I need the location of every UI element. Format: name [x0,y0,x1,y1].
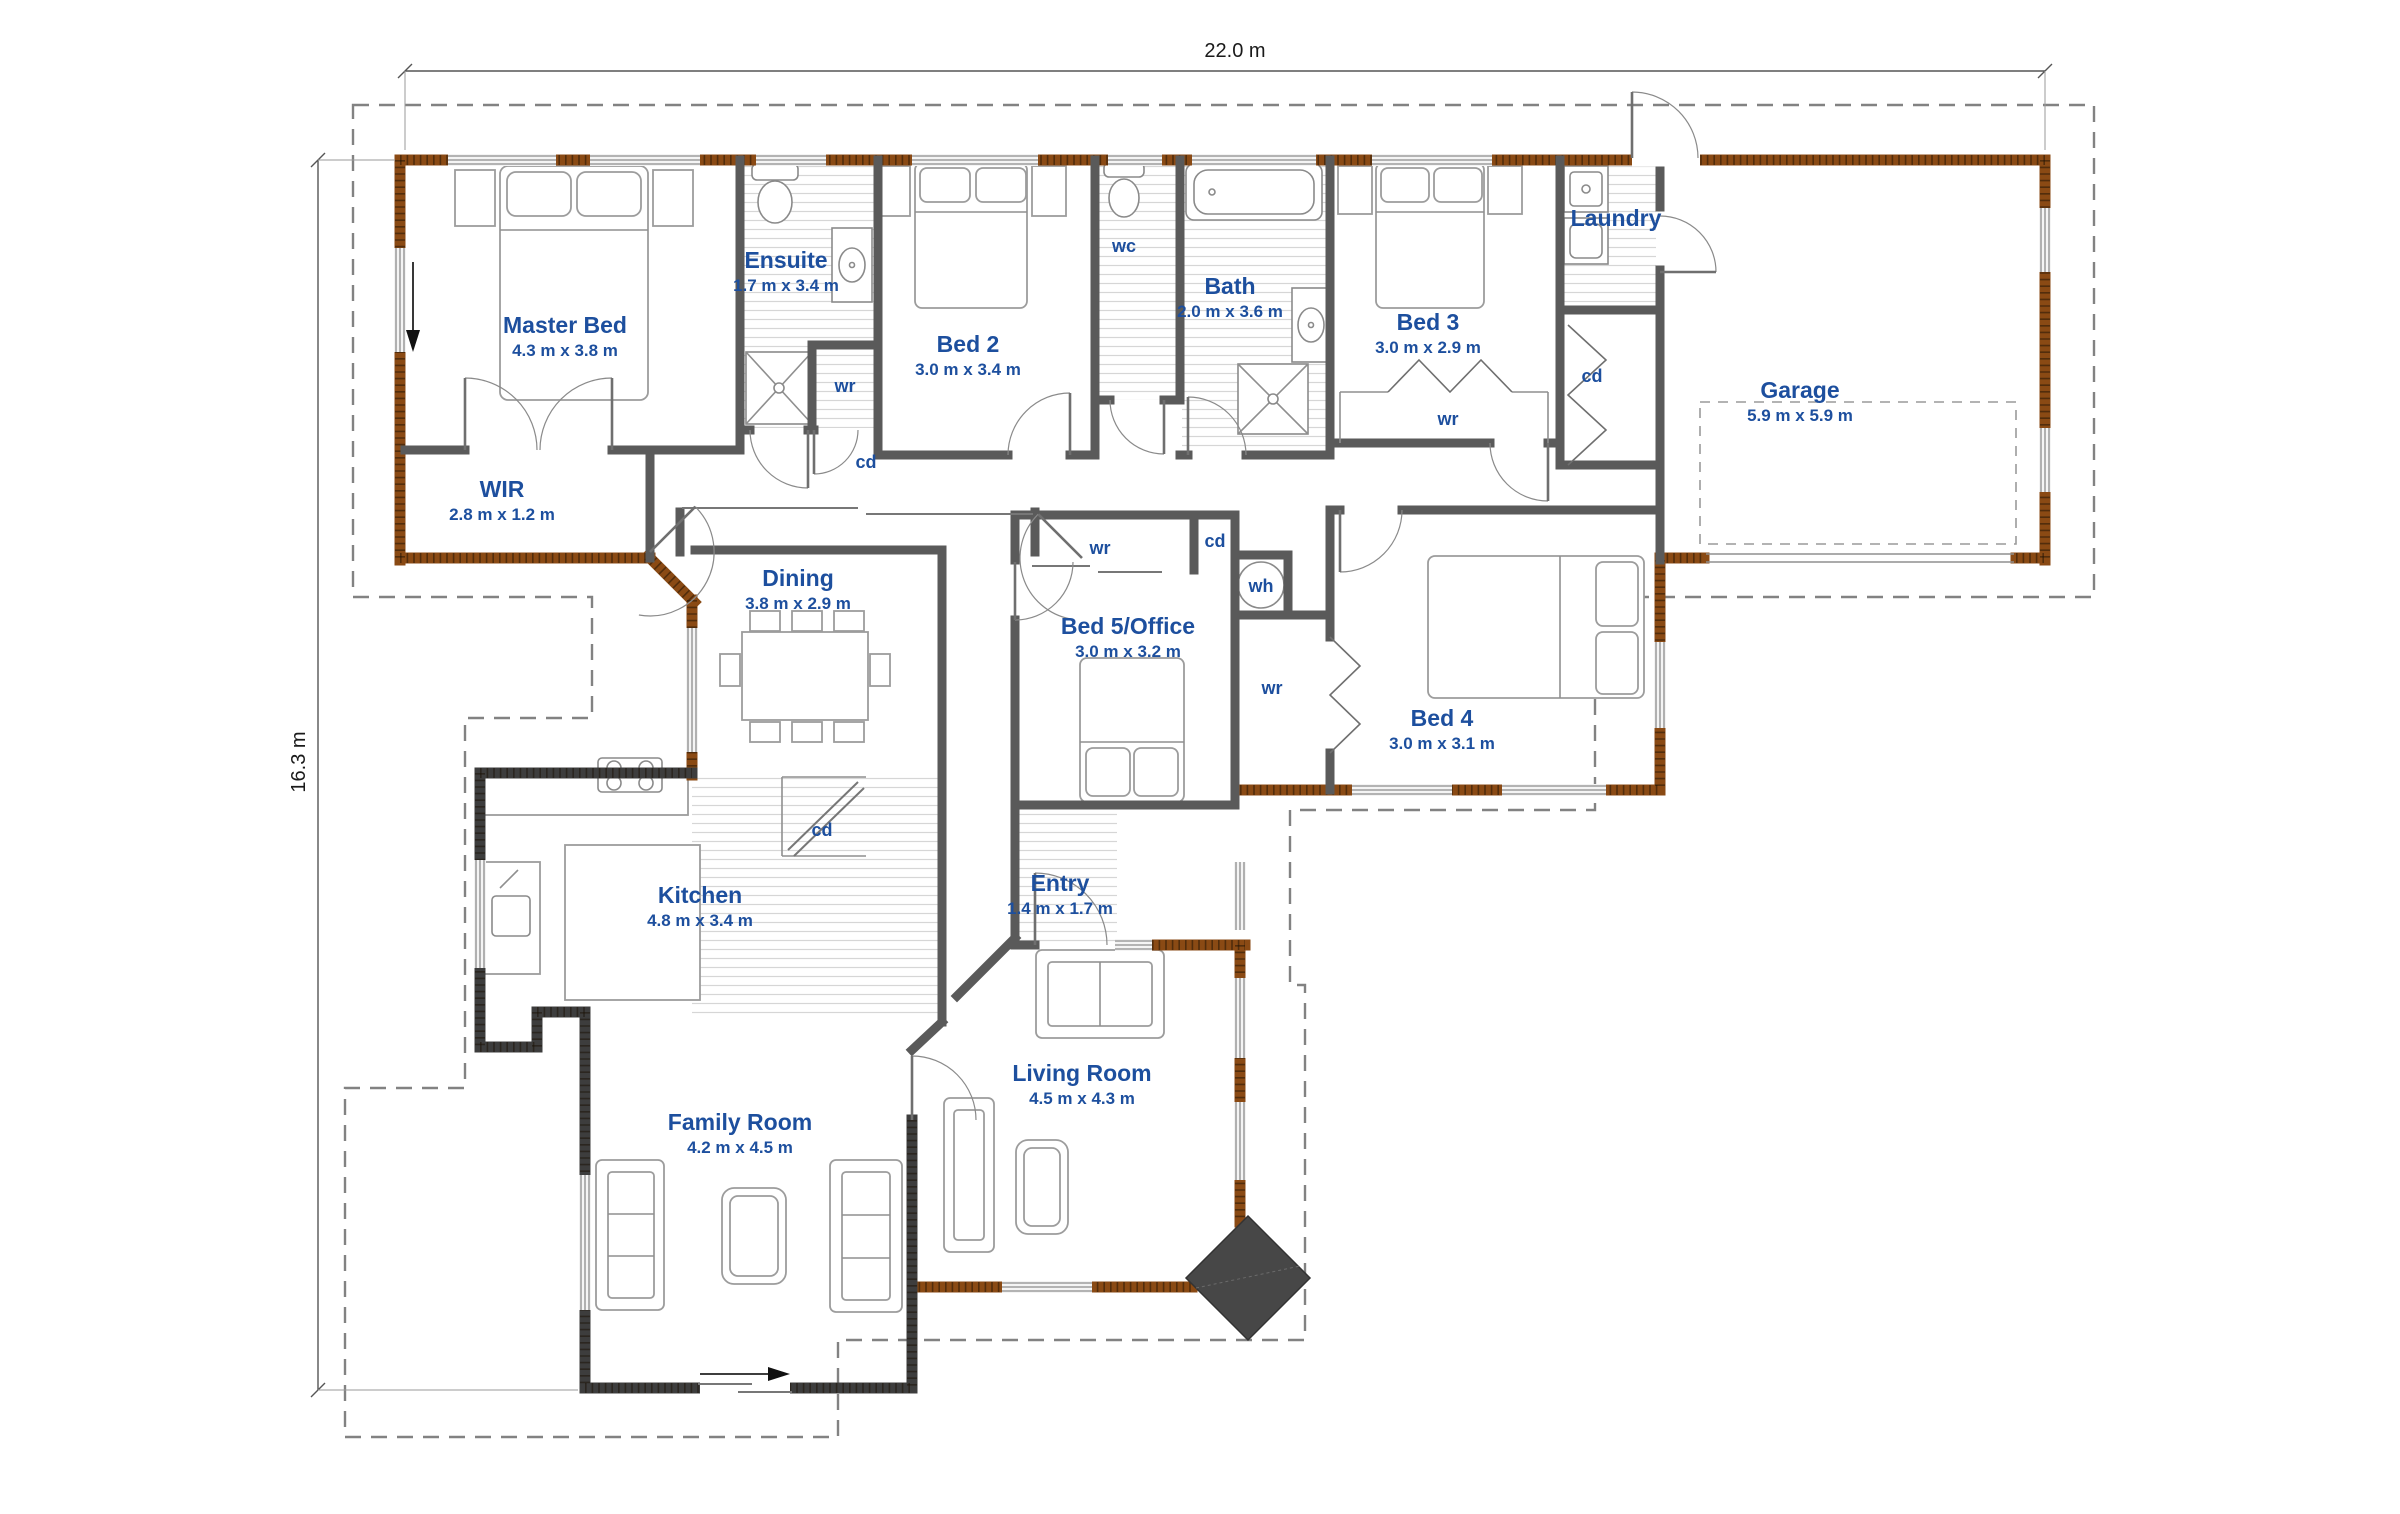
bifold-door [1330,637,1360,753]
closet-label-wr-bed4: wr [1260,678,1282,698]
closet-label-wr-bed5: wr [1088,538,1110,558]
bed-5 [1080,658,1184,802]
room-dims-family: 4.2 m x 4.5 m [687,1138,793,1157]
family-sliding-door [698,1384,792,1392]
nightstand [455,170,495,226]
nightstand [653,170,693,226]
bed-2 [876,163,1066,308]
garage-door [1706,554,2014,562]
room-label-wir: WIR [480,476,525,502]
room-dims-garage: 5.9 m x 5.9 m [1747,406,1853,425]
room-label-living: Living Room [1012,1060,1151,1086]
toilet-cistern [752,164,798,180]
room-dims-bed2: 3.0 m x 3.4 m [915,360,1021,379]
room-label-bath: Bath [1204,273,1255,299]
shower [1238,364,1308,434]
room-dims-bath: 2.0 m x 3.6 m [1177,302,1283,321]
room-label-garage: Garage [1760,377,1839,403]
room-label-family: Family Room [668,1109,812,1135]
room-label-dining: Dining [762,565,834,591]
entry-arrow-left [406,262,420,352]
room-label-kitchen: Kitchen [658,882,742,908]
room-dims-bed4: 3.0 m x 3.1 m [1389,734,1495,753]
bed-3 [1338,163,1522,308]
nightstand [1032,166,1066,216]
room-label-bed2: Bed 2 [937,331,1000,357]
room-dims-bed5: 3.0 m x 3.2 m [1075,642,1181,661]
room-label-laundry: Laundry [1571,205,1662,231]
family-room-furniture [596,1160,902,1312]
floor-plan: 22.0 m 16.3 m Master Bed 4.3 m x 3.8 m E… [0,0,2400,1514]
closet-label-cd-hall: cd [855,452,876,472]
room-label-master-bed: Master Bed [503,312,627,338]
bed-4 [1428,556,1644,698]
room-label-bed5: Bed 5/Office [1061,613,1195,639]
closet-label-cd-kitchen: cd [811,820,832,840]
room-dims-bed3: 3.0 m x 2.9 m [1375,338,1481,357]
overall-width-label: 22.0 m [1204,40,1265,62]
room-dims-dining: 3.8 m x 2.9 m [745,594,851,613]
bifold-door [1568,325,1606,465]
shower [746,352,812,424]
room-dims-wir: 2.8 m x 1.2 m [449,505,555,524]
closet-label-wr-ensuite: wr [833,376,855,396]
room-dims-kitchen: 4.8 m x 3.4 m [647,911,753,930]
closet-label-cd-bed5: cd [1204,531,1225,551]
room-label-ensuite: Ensuite [744,247,827,273]
room-dims-ensuite: 1.7 m x 3.4 m [733,276,839,295]
room-dims-entry: 1.4 m x 1.7 m [1007,899,1113,918]
room-label-entry: Entry [1031,870,1090,896]
room-label-bed3: Bed 3 [1397,309,1460,335]
closet-label-wr-bed3: wr [1436,409,1458,429]
overall-height-label: 16.3 m [288,731,310,792]
room-label-bed4: Bed 4 [1411,705,1474,731]
room-dims-living: 4.5 m x 4.3 m [1029,1089,1135,1108]
closet-label-cd-laundry: cd [1581,366,1602,386]
nightstand [1338,166,1372,214]
closet-label-wh: wh [1248,576,1274,596]
corner-fireplace [1186,1216,1310,1340]
bed-master [455,166,693,400]
room-label-wc: wc [1111,236,1136,256]
room-dims-master-bed: 4.3 m x 3.8 m [512,341,618,360]
nightstand [1488,166,1522,214]
sliding-arrow-family [700,1367,790,1381]
toilet-bowl [758,181,792,223]
dining-table [720,611,890,742]
floorplan-canvas: 22.0 m 16.3 m Master Bed 4.3 m x 3.8 m E… [0,0,2400,1514]
bifold-door [1388,360,1512,392]
